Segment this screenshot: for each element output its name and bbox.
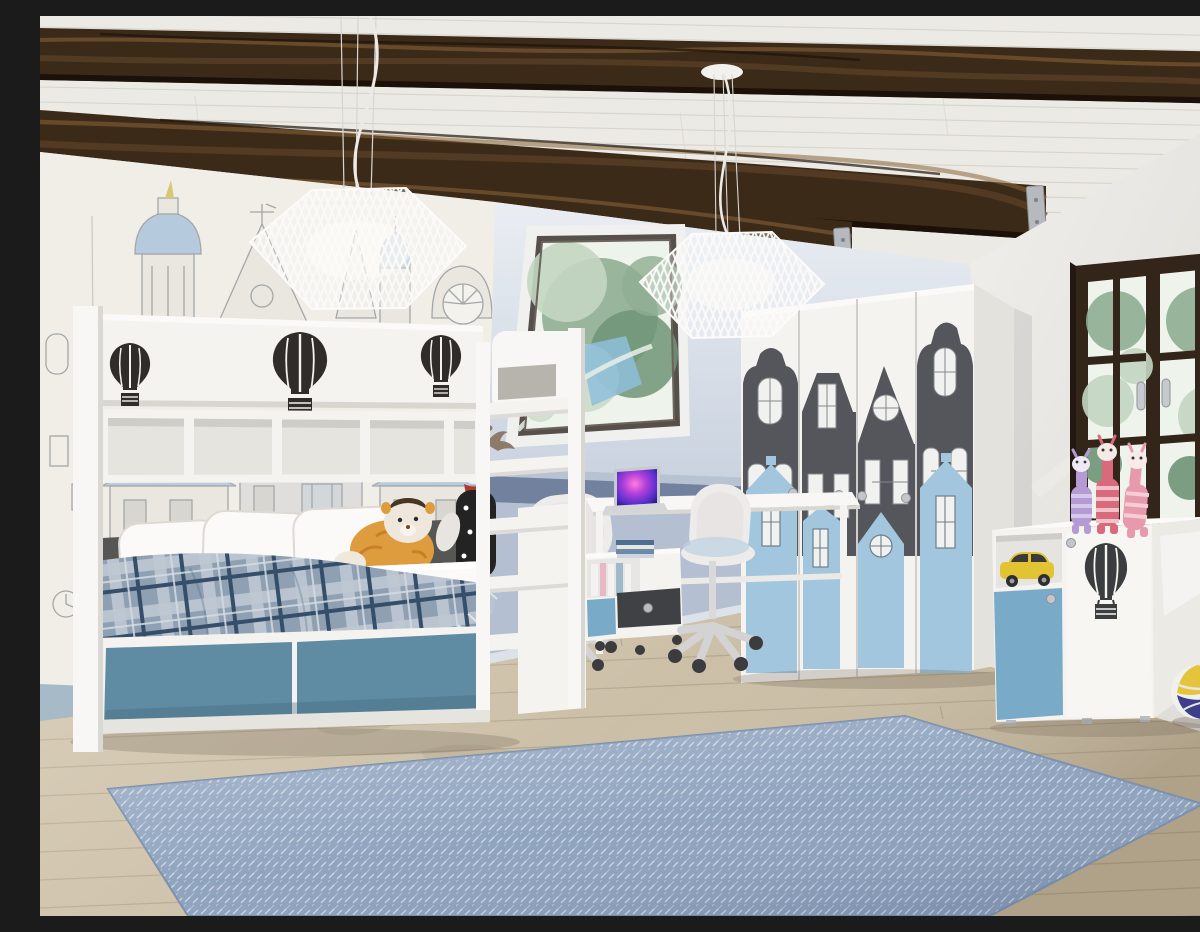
- sideboard-knob: [1067, 539, 1076, 548]
- plush-giraffe-purple: [1071, 450, 1092, 534]
- wardrobe-shadow: [733, 669, 1023, 689]
- sideboard-knob: [1047, 595, 1056, 604]
- bunk-pillow: [498, 364, 556, 400]
- sideboard-shadow: [990, 719, 1200, 737]
- room-photo: 3D render of a children's attic bedroom:…: [40, 16, 1200, 916]
- unit-drawer-blue: [587, 598, 616, 637]
- shelf-cubbies: [100, 409, 483, 483]
- sideboard-blue-door: [994, 588, 1063, 720]
- wardrobe: [733, 284, 1032, 689]
- books: [591, 563, 631, 596]
- ceiling-rose: [701, 64, 743, 80]
- plush-giraffe-red: [1096, 436, 1119, 534]
- magazine-stack: [616, 540, 654, 558]
